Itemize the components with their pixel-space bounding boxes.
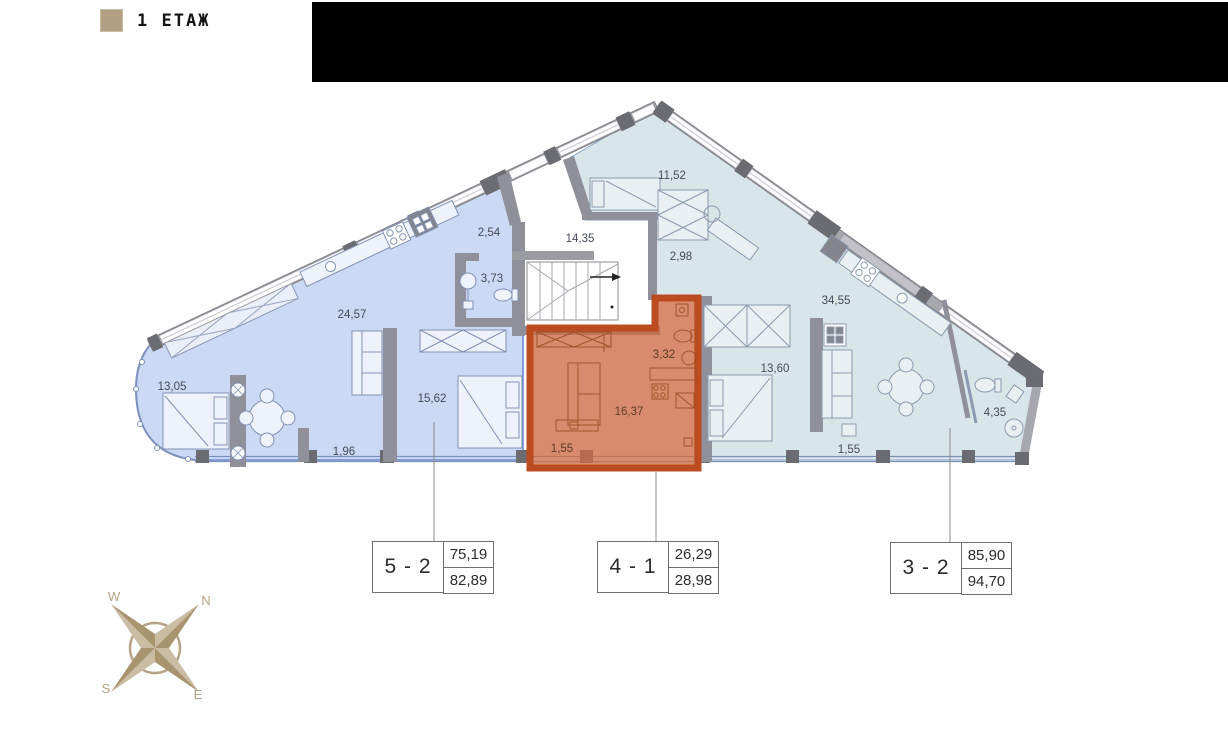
room-area-label: 3,32 xyxy=(653,349,675,361)
stairs xyxy=(527,262,621,320)
room-area-label: 2,98 xyxy=(670,251,692,263)
unit-area-living: 85,90 xyxy=(961,542,1012,569)
room-area-label: 15,62 xyxy=(418,393,447,405)
unit-number: 5 - 2 xyxy=(372,541,444,593)
unit-area-total: 28,98 xyxy=(668,567,719,594)
unit-area-living: 75,19 xyxy=(443,541,494,568)
compass-north-label: N xyxy=(201,593,210,608)
room-area-label: 14,35 xyxy=(566,233,595,245)
room-area-label: 2,54 xyxy=(478,227,501,239)
unit-number: 4 - 1 xyxy=(597,541,669,593)
compass-rose: W N S E xyxy=(85,580,230,720)
compass-west-label: W xyxy=(108,589,121,604)
unit-area-living: 26,29 xyxy=(668,541,719,568)
floorplan-page: 1 ЕТАЖ xyxy=(0,0,1228,750)
compass-east-label: E xyxy=(194,687,203,702)
compass-south-label: S xyxy=(102,681,111,696)
unit-number: 3 - 2 xyxy=(890,542,962,594)
room-area-label: 1,55 xyxy=(838,444,860,456)
unit-card-5-2[interactable]: 5 - 2 75,19 82,89 xyxy=(372,541,494,594)
room-area-label: 13,05 xyxy=(158,381,187,393)
room-area-label: 4,35 xyxy=(984,407,1006,419)
room-area-label: 11,52 xyxy=(658,170,686,182)
room-area-label: 1,96 xyxy=(333,446,355,458)
unit-area-total: 82,89 xyxy=(443,567,494,594)
room-area-label: 13,60 xyxy=(761,363,790,375)
room-area-label: 34,55 xyxy=(822,295,851,307)
unit-card-4-1[interactable]: 4 - 1 26,29 28,98 xyxy=(597,541,719,594)
room-area-label: 24,57 xyxy=(338,309,367,321)
room-area-label: 1,55 xyxy=(551,443,573,455)
room-area-label: 16,37 xyxy=(615,406,644,418)
unit-card-3-2[interactable]: 3 - 2 85,90 94,70 xyxy=(890,542,1012,595)
room-area-label: 3,73 xyxy=(481,273,503,285)
unit-area-total: 94,70 xyxy=(961,568,1012,595)
